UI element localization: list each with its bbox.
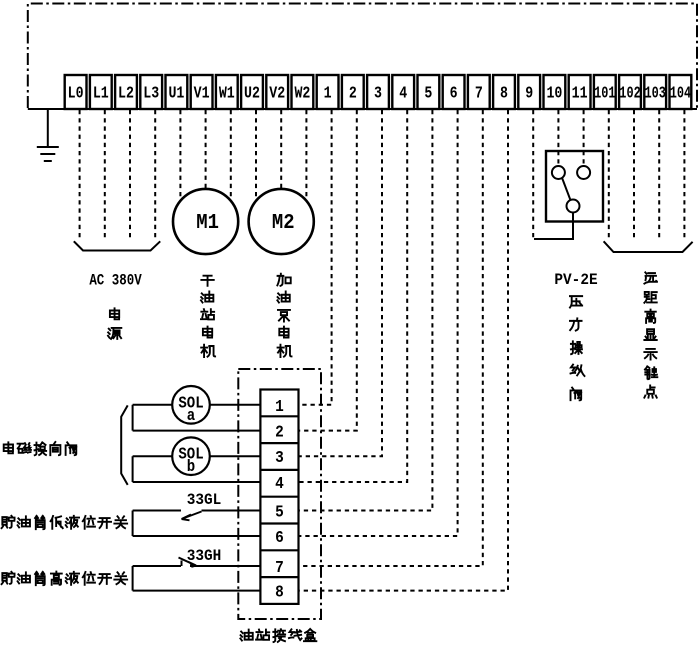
- svg-text:M2: M2: [272, 210, 295, 234]
- svg-text:7: 7: [275, 558, 284, 577]
- svg-text:33GL: 33GL: [187, 490, 222, 509]
- svg-text:1: 1: [324, 83, 332, 103]
- svg-text:1: 1: [275, 397, 284, 416]
- svg-text:103: 103: [644, 85, 666, 104]
- svg-text:3: 3: [275, 448, 284, 467]
- svg-text:PV-2E: PV-2E: [554, 270, 597, 289]
- svg-text:102: 102: [619, 85, 640, 104]
- svg-text:L0: L0: [68, 83, 84, 103]
- svg-text:V1: V1: [194, 83, 210, 103]
- svg-text:L3: L3: [143, 83, 159, 103]
- svg-text:7: 7: [475, 83, 483, 103]
- svg-text:9: 9: [525, 83, 533, 103]
- svg-text:L1: L1: [93, 83, 109, 103]
- svg-text:M1: M1: [196, 210, 219, 234]
- svg-text:6: 6: [450, 83, 458, 103]
- svg-text:2: 2: [275, 423, 284, 442]
- svg-text:33GH: 33GH: [187, 546, 222, 565]
- svg-text:5: 5: [424, 83, 432, 103]
- svg-text:11: 11: [572, 83, 588, 103]
- svg-text:104: 104: [670, 85, 692, 104]
- svg-text:a: a: [187, 406, 195, 425]
- svg-text:3: 3: [374, 83, 382, 103]
- svg-text:AC 380V: AC 380V: [89, 272, 142, 290]
- svg-text:8: 8: [500, 83, 508, 103]
- svg-text:2: 2: [349, 83, 357, 103]
- svg-text:101: 101: [594, 85, 616, 104]
- svg-text:W2: W2: [294, 83, 310, 103]
- svg-text:5: 5: [275, 502, 284, 521]
- svg-text:4: 4: [275, 474, 284, 493]
- svg-text:8: 8: [275, 583, 284, 602]
- svg-text:W1: W1: [219, 83, 235, 103]
- svg-text:U2: U2: [244, 83, 260, 103]
- svg-text:4: 4: [399, 83, 407, 103]
- svg-text:10: 10: [546, 83, 562, 103]
- svg-text:U1: U1: [168, 83, 184, 103]
- svg-text:V2: V2: [269, 83, 285, 103]
- svg-text:b: b: [187, 457, 195, 476]
- svg-text:6: 6: [275, 528, 284, 547]
- svg-text:L2: L2: [118, 83, 134, 103]
